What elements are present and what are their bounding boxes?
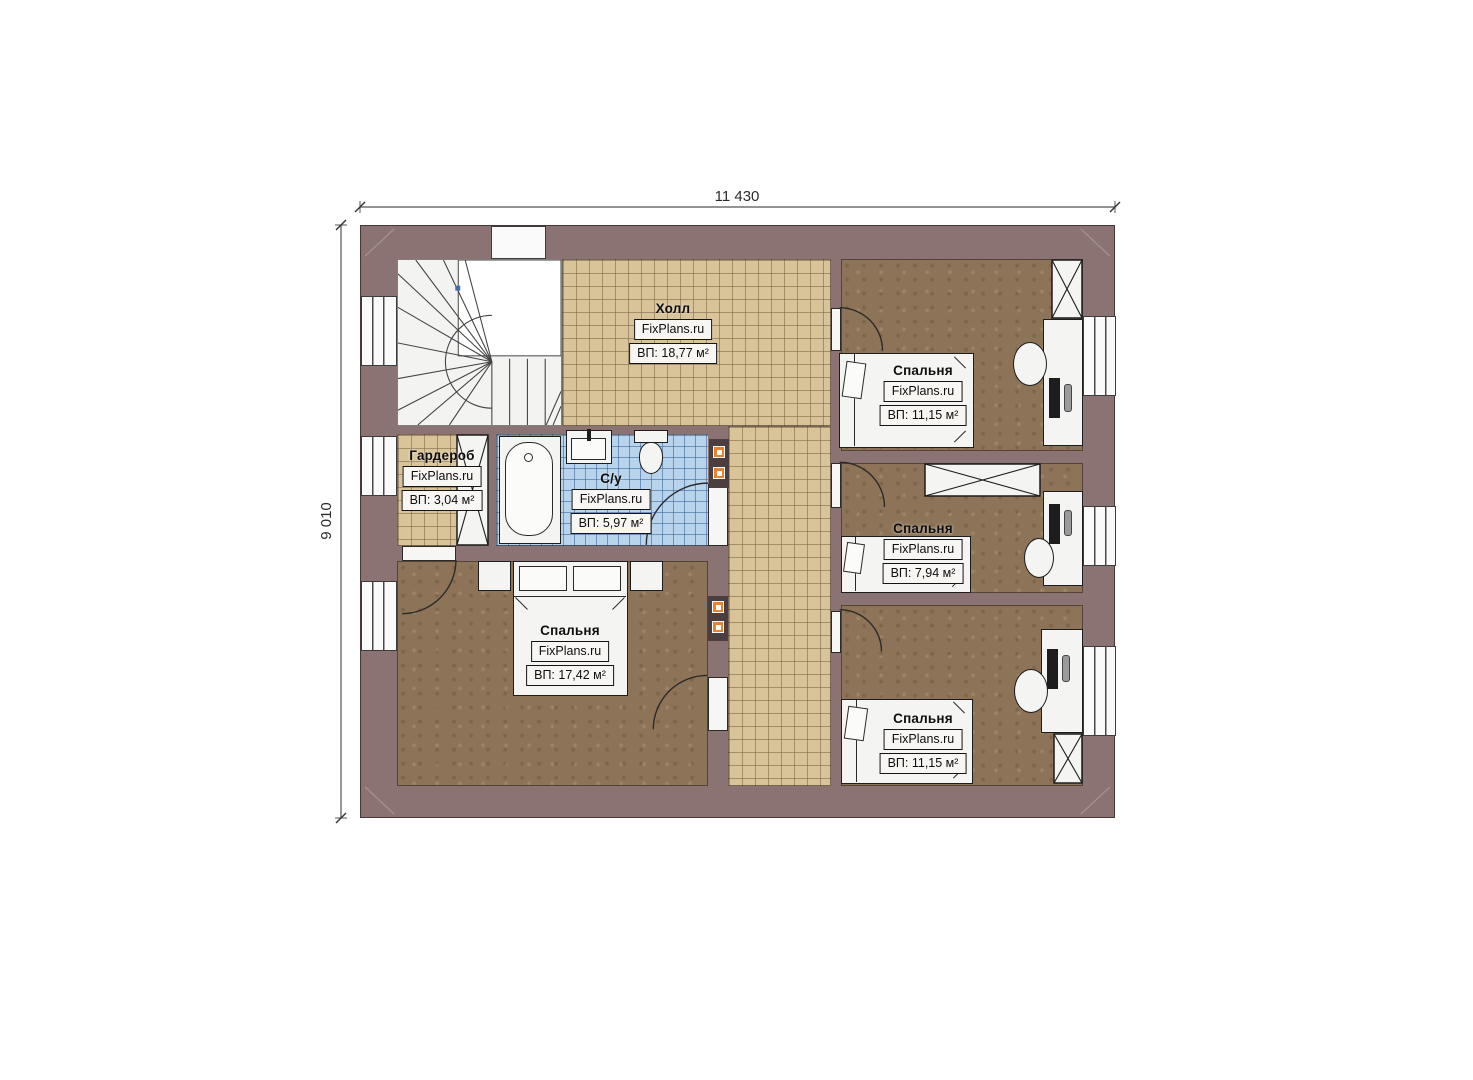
watermark: FixPlans.ru xyxy=(403,466,482,487)
keyboard xyxy=(1062,655,1070,682)
wall xyxy=(456,546,728,561)
room-label-wardrobe: Гардероб FixPlans.ru ВП: 3,04 м² xyxy=(402,448,483,511)
room-name: Спальня xyxy=(893,521,953,536)
window xyxy=(1083,316,1116,396)
blanket-fold xyxy=(954,430,966,442)
window xyxy=(361,296,397,366)
room-area: ВП: 11,15 м² xyxy=(880,405,967,426)
bathtub xyxy=(499,436,561,544)
door-opening-bathroom xyxy=(708,484,728,546)
wall xyxy=(841,593,1083,605)
watermark: FixPlans.ru xyxy=(634,319,713,340)
watermark: FixPlans.ru xyxy=(531,641,610,662)
sink-faucet xyxy=(587,429,591,441)
vent-grille-icon xyxy=(712,601,724,613)
vent-grille-icon xyxy=(713,467,725,479)
office-chair xyxy=(1014,669,1048,713)
nightstand xyxy=(630,561,663,591)
pillow xyxy=(519,566,567,591)
window xyxy=(361,581,397,651)
window xyxy=(1083,506,1116,566)
watermark: FixPlans.ru xyxy=(884,729,963,750)
door-opening-master-bedroom xyxy=(708,677,728,731)
vent-panel xyxy=(709,439,729,488)
room-name: Гардероб xyxy=(409,448,474,463)
room-name: Спальня xyxy=(893,363,953,378)
room-area: ВП: 7,94 м² xyxy=(883,563,964,584)
door-opening-bedroom-bottom xyxy=(831,611,841,653)
room-label-bedroom-bottom: Спальня FixPlans.ru ВП: 11,15 м² xyxy=(880,711,967,774)
door-opening-bedroom-top xyxy=(831,308,841,351)
office-chair xyxy=(1024,538,1054,578)
bathtub-drain xyxy=(524,453,533,462)
room-area: ВП: 3,04 м² xyxy=(402,490,483,511)
wall xyxy=(841,451,1083,463)
wall xyxy=(831,259,841,308)
keyboard xyxy=(1064,510,1072,536)
room-label-hall: Холл FixPlans.ru ВП: 18,77 м² xyxy=(629,301,717,364)
vent-grille-icon xyxy=(712,621,724,633)
blanket-edge xyxy=(514,596,626,597)
room-name: Спальня xyxy=(540,623,600,638)
watermark: FixPlans.ru xyxy=(884,539,963,560)
wardrobe-unit xyxy=(924,463,1041,497)
room-name: Холл xyxy=(656,301,691,316)
wardrobe-unit xyxy=(1053,733,1083,784)
room-label-master-bedroom: Спальня FixPlans.ru ВП: 17,42 м² xyxy=(526,623,614,686)
wall xyxy=(831,508,841,611)
vent-grille-icon xyxy=(713,446,725,458)
sink-basin xyxy=(571,438,606,460)
computer-monitor xyxy=(1049,504,1060,544)
room-name: Спальня xyxy=(893,711,953,726)
wall xyxy=(708,731,728,786)
pillow xyxy=(843,542,865,574)
pillow xyxy=(844,706,868,741)
door-opening-bedroom-middle xyxy=(831,463,841,508)
wardrobe-unit xyxy=(1051,259,1083,319)
office-chair xyxy=(1013,342,1047,386)
toilet-bowl xyxy=(639,442,663,474)
room-area: ВП: 18,77 м² xyxy=(629,343,717,364)
dimension-lines: 11 430 9 010 xyxy=(0,0,1473,1080)
room-area: ВП: 17,42 м² xyxy=(526,665,614,686)
room-area: ВП: 5,97 м² xyxy=(571,513,652,534)
window xyxy=(1083,646,1116,736)
room-label-bedroom-middle: Спальня FixPlans.ru ВП: 7,94 м² xyxy=(883,521,964,584)
watermark: FixPlans.ru xyxy=(572,489,651,510)
room-area: ВП: 11,15 м² xyxy=(880,753,967,774)
nightstand xyxy=(478,561,511,591)
sink xyxy=(566,430,612,464)
floor-plan-page: 11 430 9 010 xyxy=(0,0,1473,1080)
dimension-width-label: 11 430 xyxy=(715,188,760,205)
room-name: С/у xyxy=(600,471,622,486)
wall xyxy=(488,434,496,546)
room-label-bathroom: С/у FixPlans.ru ВП: 5,97 м² xyxy=(571,471,652,534)
watermark: FixPlans.ru xyxy=(884,381,963,402)
keyboard xyxy=(1064,384,1072,412)
blanket-fold xyxy=(612,597,625,610)
dimension-height-label: 9 010 xyxy=(318,502,335,540)
vent-panel xyxy=(708,596,728,641)
pillow xyxy=(842,361,867,399)
wall xyxy=(831,653,841,786)
room-label-bedroom-top: Спальня FixPlans.ru ВП: 11,15 м² xyxy=(880,363,967,426)
window xyxy=(361,436,397,496)
pillow xyxy=(573,566,621,591)
door-opening-wardrobe xyxy=(402,546,456,561)
computer-monitor xyxy=(1047,649,1058,689)
blanket-fold xyxy=(515,597,528,610)
computer-monitor xyxy=(1049,378,1060,418)
top-wall-opening xyxy=(491,226,546,259)
